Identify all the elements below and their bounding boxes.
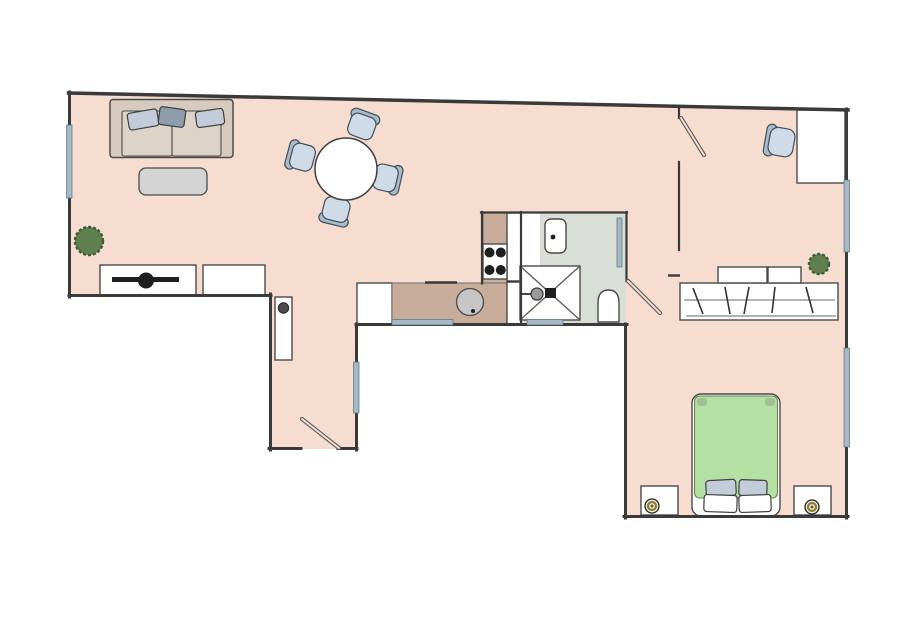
coffee-table: [139, 168, 207, 195]
sideboard: [203, 265, 265, 296]
burner-icon: [485, 265, 495, 275]
wardrobe: [680, 283, 838, 320]
tv-base: [138, 273, 154, 289]
plant-icon: [75, 227, 103, 255]
entry-hall: [275, 297, 292, 360]
window: [527, 320, 563, 326]
burner-icon: [496, 248, 506, 258]
nightstand-left: [641, 486, 678, 515]
cabinet-knob: [278, 303, 288, 313]
storage-box: [718, 267, 767, 283]
window: [354, 362, 360, 413]
floor-plan: [0, 0, 900, 636]
kitchen-counter-white: [357, 283, 392, 324]
storage-box: [768, 267, 801, 283]
window: [844, 348, 850, 447]
shower-drain: [545, 288, 556, 298]
burner-icon: [485, 248, 495, 258]
kitchen-tall-cabinet: [507, 213, 521, 324]
window: [392, 320, 453, 326]
bed-pillow: [704, 494, 738, 512]
window: [844, 180, 850, 252]
tv-stand: [100, 265, 196, 296]
throw-pillow: [195, 108, 225, 128]
bed-pillow: [739, 480, 768, 497]
sofa: [110, 100, 233, 158]
stove: [483, 244, 507, 279]
double-bed: [692, 394, 780, 516]
washbasin: [545, 219, 566, 253]
bed-pillow: [739, 494, 772, 512]
kitchen-sink: [457, 289, 484, 316]
throw-pillow: [158, 106, 186, 127]
desk: [797, 110, 845, 183]
dining-table: [315, 138, 377, 200]
nightstand-right: [794, 486, 831, 515]
radiator: [617, 218, 622, 267]
window: [67, 125, 73, 198]
burner-icon: [496, 265, 506, 275]
plant-icon: [809, 254, 829, 274]
kitchen-counter-bottom: [392, 283, 507, 324]
toilet: [598, 290, 619, 322]
floor-plan-canvas: [0, 0, 900, 636]
bathroom-counter: [522, 213, 540, 268]
